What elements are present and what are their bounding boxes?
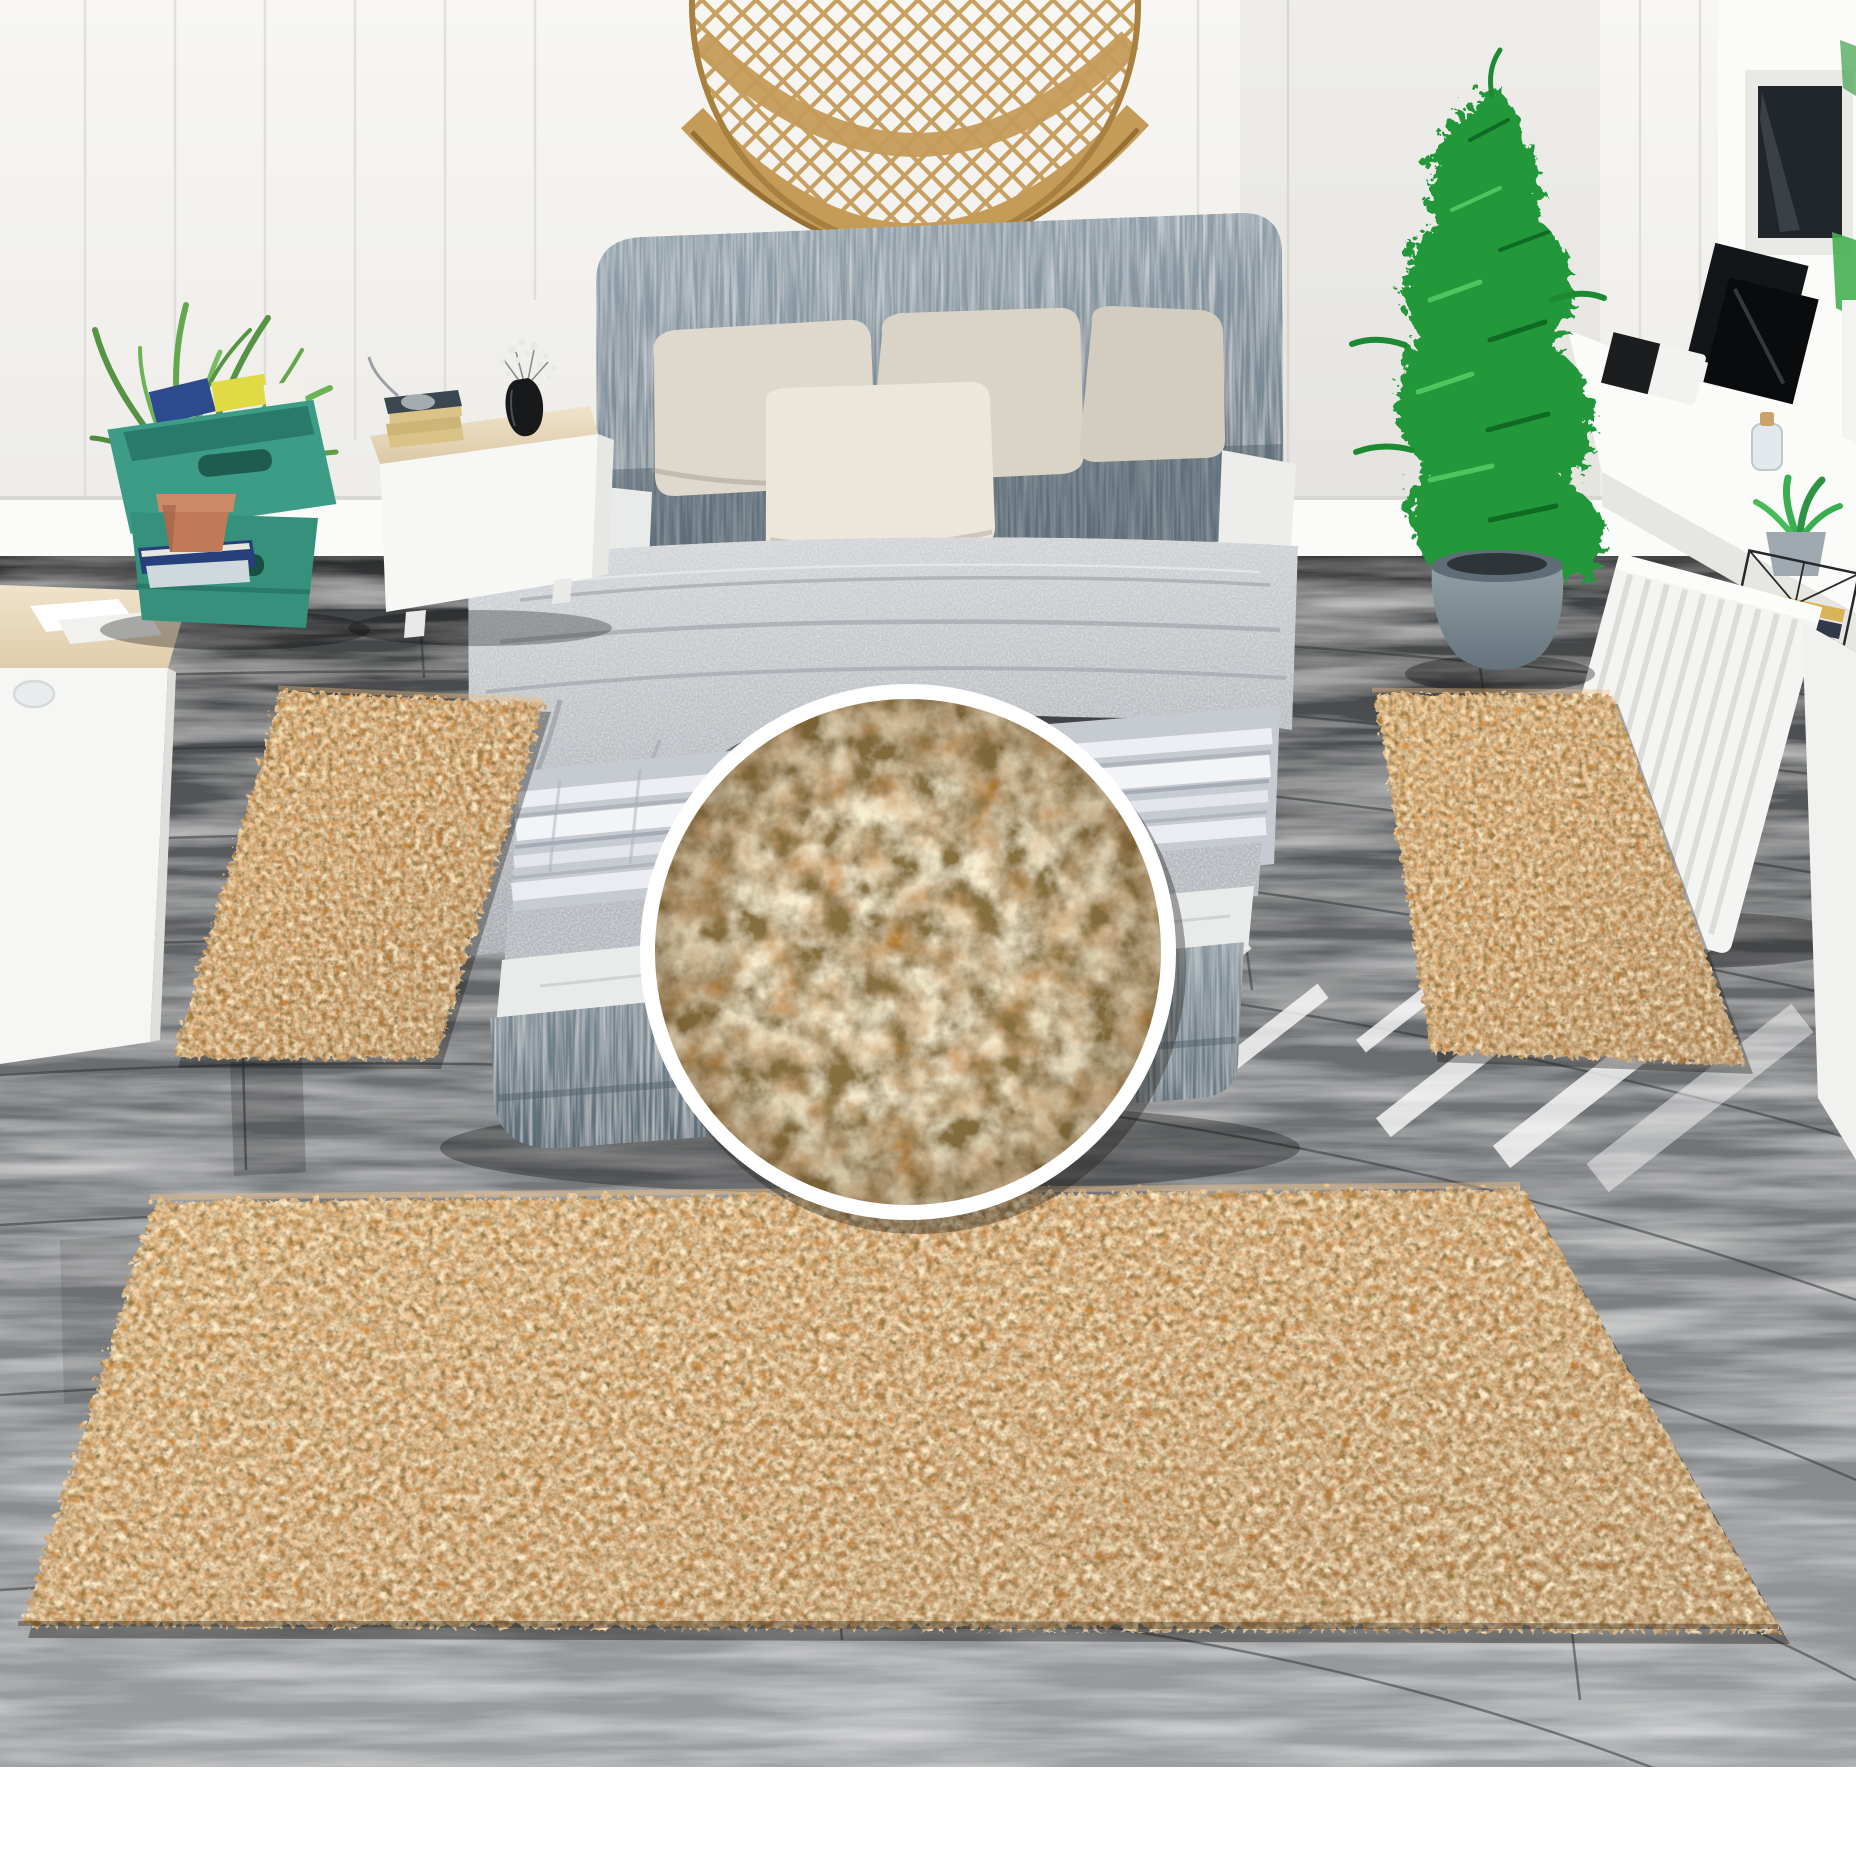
- succulent-pot: [1766, 532, 1826, 576]
- water-glass: [14, 681, 54, 707]
- left-desk: [0, 585, 190, 1064]
- inset-vignette: [655, 699, 1161, 1205]
- nightstand-leg: [404, 610, 426, 638]
- pillow-back-right: [1080, 306, 1225, 462]
- nightstand-leg: [552, 578, 572, 604]
- rug-foot-runner-group: [18, 1185, 1790, 1644]
- bottom-white-band: [0, 1767, 1856, 1855]
- bedroom-product-photo: [0, 0, 1856, 1855]
- nightstand-shadow: [348, 610, 612, 646]
- rug-foot-runner: [18, 1185, 1778, 1628]
- photo-area: [0, 0, 1856, 1855]
- rug-right-top-highlight: [1372, 690, 1610, 692]
- book-cover-art: [401, 394, 435, 410]
- left-desk-front: [0, 668, 168, 1064]
- scene-canvas: [0, 0, 1856, 1855]
- pillow-front: [765, 382, 995, 556]
